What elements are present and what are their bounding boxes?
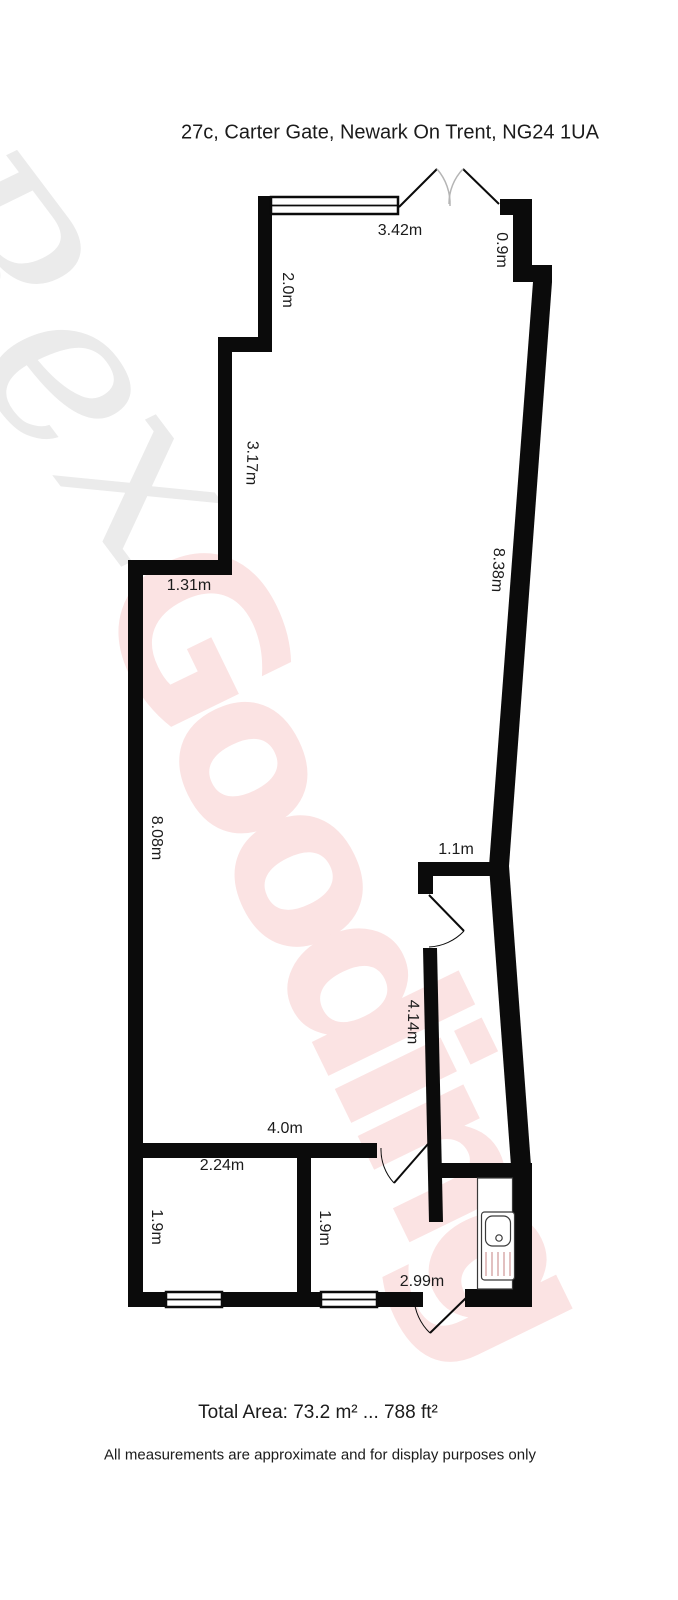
- dim-2-24m: 2.24m: [200, 1157, 244, 1175]
- page-title: 27c, Carter Gate, Newark On Trent, NG24 …: [181, 122, 599, 145]
- door-hall-icon: [381, 1144, 428, 1183]
- dim-1-9m-left: 1.9m: [147, 1209, 165, 1245]
- dim-3-17m: 3.17m: [241, 440, 261, 485]
- window-bottom-right-icon: [321, 1292, 377, 1307]
- outer-walls: [128, 196, 552, 1307]
- wall-0-9: [513, 199, 532, 282]
- dim-1-1m: 1.1m: [438, 841, 474, 859]
- window-bottom-left-icon: [166, 1292, 222, 1307]
- total-area-text: Total Area: 73.2 m² ... 788 ft²: [198, 1402, 438, 1424]
- window-top-icon: [271, 197, 398, 214]
- sink-icon: [482, 1212, 515, 1280]
- disclaimer-text: All measurements are approximate and for…: [104, 1447, 536, 1464]
- wall-1-1-jamb: [418, 862, 433, 894]
- wall-step-right: [532, 265, 552, 282]
- dim-1-9m-right: 1.9m: [315, 1210, 333, 1246]
- wall-right-lower-diagonal: [489, 866, 531, 1166]
- wall-4-14: [423, 948, 443, 1222]
- kitchen-counter: [478, 1178, 515, 1289]
- dim-8-08m: 8.08m: [147, 816, 165, 860]
- dim-2-0m: 2.0m: [278, 272, 296, 308]
- double-door-icon: [399, 169, 499, 207]
- door-corridor-icon: [429, 895, 464, 947]
- wall-left-upper: [258, 196, 272, 352]
- wall-1-31: [128, 560, 232, 575]
- dim-0-9m: 0.9m: [492, 232, 510, 268]
- wall-3-17: [218, 337, 232, 565]
- dim-2-99m: 2.99m: [400, 1273, 444, 1291]
- dim-4-0m: 4.0m: [267, 1120, 303, 1138]
- dim-4-14m: 4.14m: [403, 1000, 422, 1045]
- wall-room-divider: [297, 1158, 311, 1292]
- dim-3-42m: 3.42m: [378, 222, 422, 240]
- wall-left-main: [128, 560, 143, 1307]
- floorplan: [0, 0, 678, 1600]
- dim-1-31m: 1.31m: [167, 577, 211, 595]
- wall-4-0: [128, 1143, 377, 1158]
- wall-counter-top: [438, 1163, 518, 1178]
- dim-8-38m: 8.38m: [487, 547, 507, 592]
